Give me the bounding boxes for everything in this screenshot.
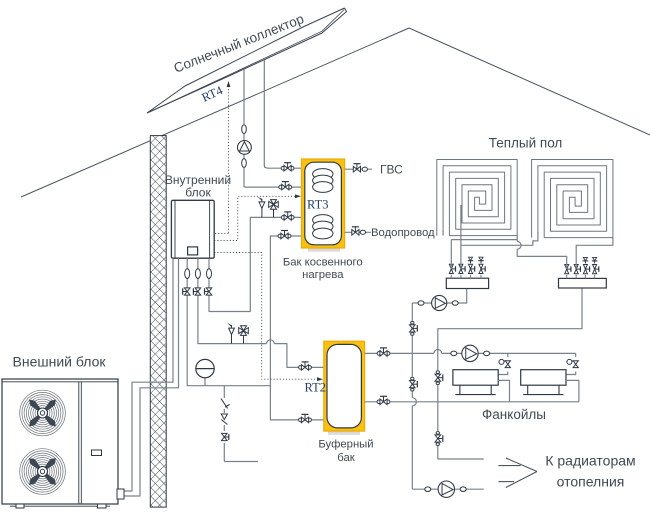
svg-text:RT3: RT3 <box>307 198 328 212</box>
svg-text:Фанкойлы: Фанкойлы <box>482 407 546 422</box>
svg-text:ГВС: ГВС <box>380 163 403 177</box>
svg-text:К радиаторам: К радиаторам <box>545 453 635 469</box>
svg-text:бак: бак <box>337 452 354 464</box>
svg-text:Бак косвенного: Бак косвенного <box>283 257 363 269</box>
svg-text:отопелния: отопелния <box>557 474 625 490</box>
svg-text:Буферный: Буферный <box>318 439 373 451</box>
svg-text:нагрева: нагрева <box>302 269 344 281</box>
svg-text:блок: блок <box>185 186 211 200</box>
svg-text:Теплый пол: Теплый пол <box>489 136 563 151</box>
svg-text:Внешний блок: Внешний блок <box>13 354 107 370</box>
svg-text:RT2: RT2 <box>305 381 326 395</box>
svg-text:Водопровод: Водопровод <box>371 227 435 239</box>
